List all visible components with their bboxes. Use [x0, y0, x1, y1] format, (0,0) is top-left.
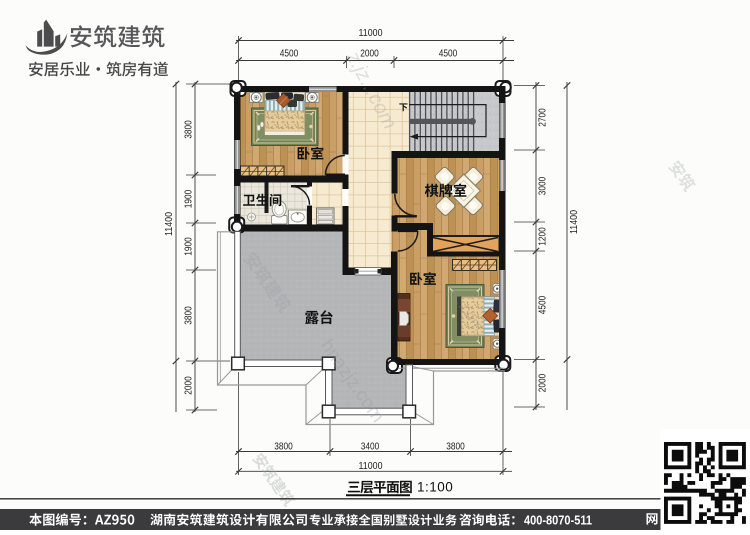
svg-text:4500: 4500: [280, 47, 299, 59]
svg-text:1:100: 1:100: [417, 480, 453, 495]
svg-text:2000: 2000: [183, 376, 195, 395]
svg-text:3400: 3400: [361, 440, 380, 452]
svg-text:2700: 2700: [537, 108, 549, 127]
svg-text:2000: 2000: [537, 374, 549, 393]
svg-text:4500: 4500: [439, 47, 458, 59]
svg-text:11000: 11000: [359, 460, 383, 472]
svg-text:3800: 3800: [183, 120, 195, 139]
svg-text:11000: 11000: [359, 27, 383, 39]
svg-text:3800: 3800: [446, 440, 465, 452]
svg-text:11400: 11400: [163, 212, 175, 236]
svg-text:11400: 11400: [568, 210, 580, 234]
svg-text:1900: 1900: [183, 237, 195, 256]
svg-text:3000: 3000: [537, 177, 549, 196]
svg-text:1900: 1900: [183, 190, 195, 209]
svg-text:4500: 4500: [537, 296, 549, 315]
svg-text:3800: 3800: [274, 440, 293, 452]
svg-text:400-8070-511: 400-8070-511: [524, 513, 592, 527]
svg-text:3800: 3800: [183, 306, 195, 325]
svg-text:1200: 1200: [537, 227, 549, 246]
